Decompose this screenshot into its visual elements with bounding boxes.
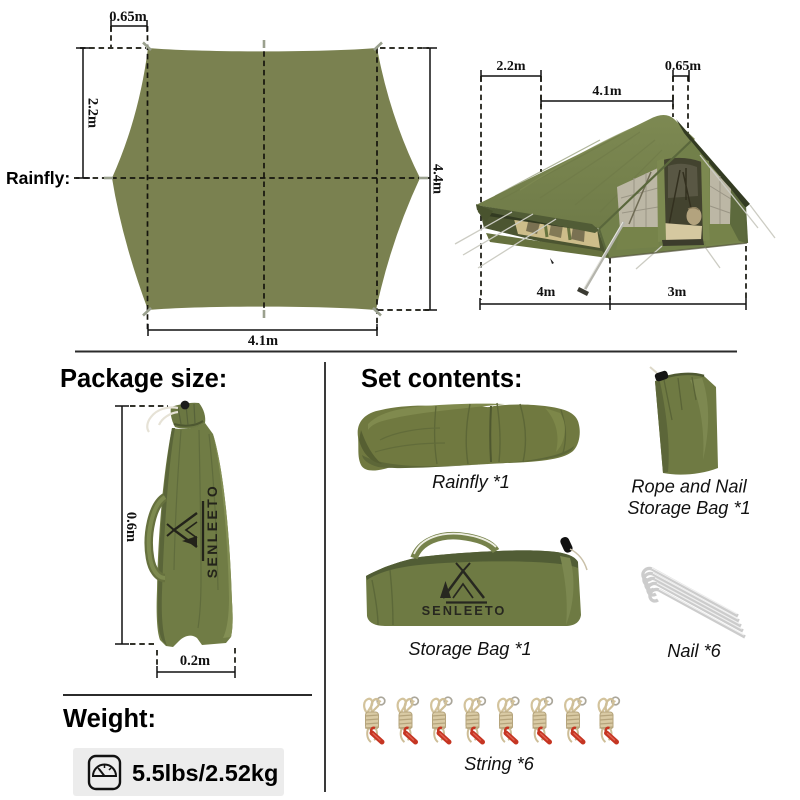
svg-text:Package size:: Package size:	[60, 365, 227, 393]
svg-text:Rainfly:: Rainfly:	[6, 168, 70, 188]
svg-text:4.4m: 4.4m	[430, 164, 446, 194]
svg-text:Weight:: Weight:	[63, 705, 156, 733]
svg-text:4m: 4m	[537, 285, 556, 300]
svg-text:0.6m: 0.6m	[123, 512, 139, 542]
svg-text:2.2m: 2.2m	[496, 59, 526, 74]
svg-text:4.1m: 4.1m	[248, 333, 278, 349]
svg-text:0.2m: 0.2m	[180, 653, 210, 669]
svg-text:Rainfly *1: Rainfly *1	[432, 472, 510, 492]
svg-text:Set contents:: Set contents:	[361, 365, 523, 393]
svg-text:0.65m: 0.65m	[665, 59, 702, 74]
svg-text:5.5lbs/2.52kg: 5.5lbs/2.52kg	[132, 760, 278, 786]
svg-text:Storage Bag *1: Storage Bag *1	[627, 498, 750, 518]
svg-text:Storage Bag *1: Storage Bag *1	[408, 639, 531, 659]
svg-text:SENLEETO: SENLEETO	[422, 603, 507, 618]
svg-text:SENLEETO: SENLEETO	[204, 484, 220, 578]
svg-text:0.65m: 0.65m	[109, 9, 146, 25]
svg-text:String *6: String *6	[464, 754, 535, 774]
svg-text:3m: 3m	[668, 285, 687, 300]
svg-text:Nail *6: Nail *6	[667, 641, 721, 661]
svg-text:2.2m: 2.2m	[85, 98, 101, 128]
svg-text:Rope and Nail: Rope and Nail	[631, 477, 747, 497]
svg-text:4.1m: 4.1m	[592, 84, 622, 99]
